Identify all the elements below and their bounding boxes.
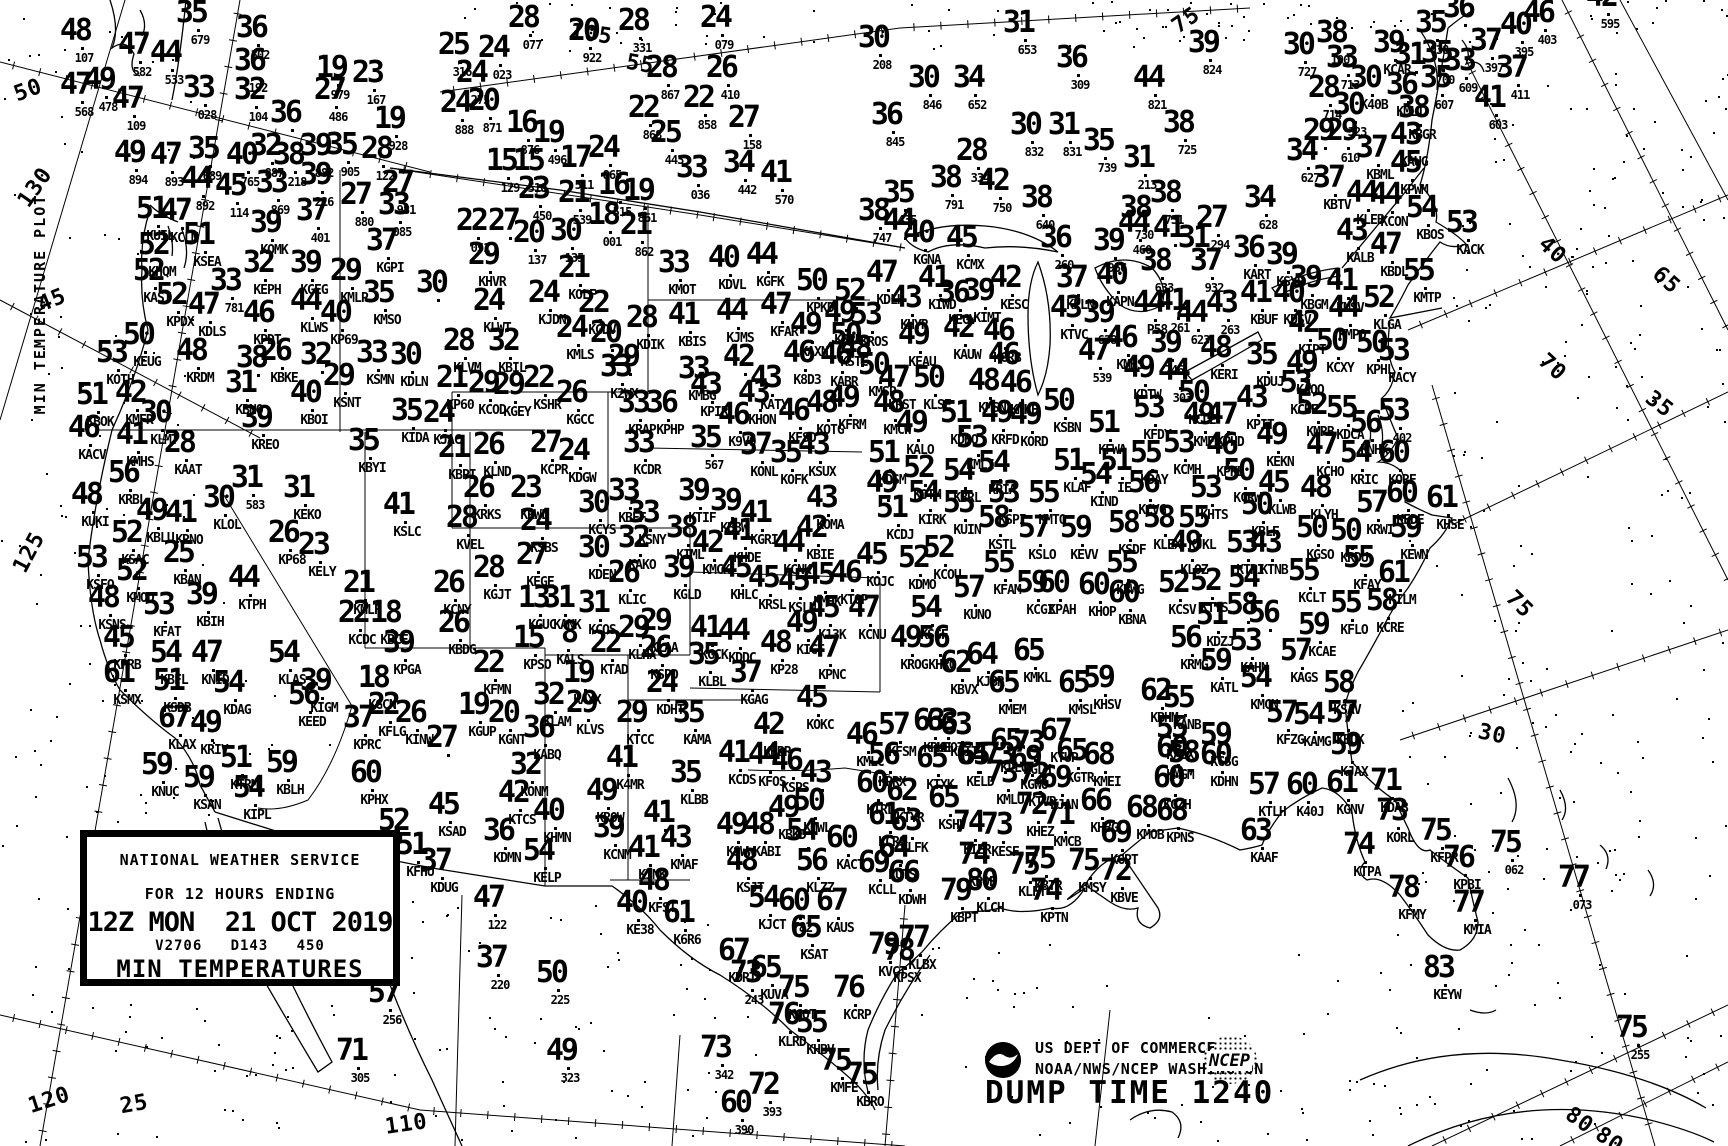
station-dot [829, 624, 832, 627]
station-dot [892, 131, 895, 134]
station-temp: 47 [816, 259, 896, 287]
station-dot [494, 914, 497, 917]
station-temp: 48 [1250, 474, 1330, 502]
station-dot [764, 841, 767, 844]
station-dot [1174, 794, 1177, 797]
station-dot [1307, 379, 1310, 382]
station-temp: 54 [473, 837, 553, 865]
station-id: 208 [837, 59, 927, 72]
station-dot [1261, 847, 1264, 850]
station-temp: 29 [273, 362, 353, 390]
station-temp: 47 [1028, 337, 1108, 365]
station-dot [961, 907, 964, 910]
station-dot [1464, 874, 1467, 877]
station-dot [454, 599, 457, 602]
station-dot [207, 611, 210, 614]
station-dot [459, 639, 462, 642]
station-temp: 22 [423, 649, 503, 677]
station-id: KDUG [399, 882, 489, 895]
station-dot [489, 271, 492, 274]
station-temp: 49 [496, 1037, 576, 1065]
station-id: 403 [1502, 34, 1592, 47]
station-temp: 41 [578, 834, 658, 862]
station-dot [344, 392, 347, 395]
station-temp: 31 [1073, 144, 1153, 172]
station-temp: 30 [366, 269, 446, 297]
station-dot [384, 309, 387, 312]
station-temp: 22 [578, 94, 658, 122]
station-dot [403, 199, 406, 202]
station-dot [1002, 429, 1005, 432]
station-dot [694, 729, 697, 732]
station-dot [264, 329, 267, 332]
station-temp: 71 [286, 1037, 366, 1065]
station-dot [171, 69, 174, 72]
station-temp: 60 [1328, 439, 1408, 467]
station-temp: 49 [140, 709, 220, 737]
station-dot [897, 524, 900, 527]
station-dot [1081, 544, 1084, 547]
station-temp: 27 [376, 724, 456, 752]
station-temp: 54 [928, 449, 1008, 477]
station-dot [681, 854, 684, 857]
station-dot [377, 369, 380, 372]
station-dot [637, 729, 640, 732]
station-dot [721, 34, 724, 37]
station-temp: 32 [438, 327, 518, 355]
station-dot [1269, 801, 1272, 804]
station-temp: 35 [623, 699, 703, 727]
station-dot [737, 841, 740, 844]
station-temp: 65 [963, 637, 1043, 665]
station-dot [867, 1091, 870, 1094]
station-temp: 24 [596, 669, 676, 697]
station-dot [494, 317, 497, 320]
station-dot [1191, 559, 1194, 562]
station-dot [639, 419, 642, 422]
station-temp: 78 [833, 937, 913, 965]
station-id: 435 [862, 214, 952, 227]
station-dot [1544, 29, 1547, 32]
station-id: KATY [729, 399, 819, 412]
station-temp: 44 [696, 241, 776, 269]
station-temp: 39 [191, 404, 271, 432]
station-dot [817, 714, 820, 717]
station-dot [1351, 761, 1354, 764]
side-axis-label: MIN TEMPERATURE PLOT [31, 189, 49, 419]
station-id: KHSV [1062, 699, 1152, 712]
station-temp: 37 [680, 659, 760, 687]
station-dot [1154, 94, 1157, 97]
station-dot [133, 115, 136, 118]
station-id: KMIA [1432, 924, 1522, 937]
ncep-logo-text: NCEP [1207, 1051, 1252, 1071]
station-dot [1099, 367, 1102, 370]
station-id: KPSX [862, 972, 952, 985]
station-temp: 75 [1370, 817, 1450, 845]
station-temp: 57 [1230, 637, 1310, 665]
station-temp: 61 [1376, 484, 1456, 512]
station-dot [1287, 271, 1290, 274]
station-id: KPTN [1009, 912, 1099, 925]
station-dot [395, 135, 398, 138]
station-dot [579, 467, 582, 470]
station-dot [771, 394, 774, 397]
station-temp: 27 [332, 169, 412, 197]
station-temp: 26 [388, 609, 468, 637]
station-dot [437, 299, 440, 302]
station-dot [1144, 174, 1147, 177]
station-temp: 25 [600, 119, 680, 147]
station-dot [234, 699, 237, 702]
station-dot [684, 929, 687, 932]
station-temp: 66 [838, 859, 918, 887]
station-temp: 45 [378, 791, 458, 819]
station-temp: 26 [506, 379, 586, 407]
station-id: K6R6 [642, 934, 732, 947]
station-temp: 54 [163, 669, 243, 697]
station-dot [1387, 617, 1390, 620]
station-dot [974, 604, 977, 607]
station-dot [319, 561, 322, 564]
station-dot [412, 427, 415, 430]
station-dot [254, 804, 257, 807]
station-dot [904, 967, 907, 970]
station-dot [1209, 59, 1212, 62]
station-dot [1051, 907, 1054, 910]
station-dot [691, 789, 694, 792]
station-temp: 33 [160, 267, 240, 295]
station-dot [1129, 609, 1132, 612]
station-dot [509, 357, 512, 360]
station-dot [749, 134, 752, 137]
station-dot [185, 459, 188, 462]
station-dot [389, 1009, 392, 1012]
cuba [1360, 1053, 1714, 1146]
station-dot [1424, 287, 1427, 290]
station-temp: 51 [1038, 409, 1118, 437]
station-dot [1024, 39, 1027, 42]
station-dot [924, 249, 927, 252]
station-dot [341, 329, 344, 332]
station-id: KACK [1425, 244, 1515, 257]
station-dot [811, 944, 814, 947]
station-temp: 59 [216, 749, 296, 777]
station-id: 595 [1565, 18, 1655, 31]
legend-valid-time: 12Z MON 21 OCT 2019 [87, 907, 393, 938]
station-dot [1384, 314, 1387, 317]
station-temp: 55 [1238, 557, 1318, 585]
station-dot [1049, 509, 1052, 512]
station-temp: 73 [963, 729, 1043, 757]
yucatan [1130, 1110, 1181, 1138]
station-dot [1045, 875, 1048, 878]
station-id: KBRO [825, 1096, 915, 1109]
station-temp: 47 [1320, 231, 1400, 259]
station-temp: 53 [1396, 209, 1476, 237]
noaa-logo-icon [985, 1042, 1021, 1078]
station-id: KEYW [1402, 989, 1492, 1002]
station-temp: 21 [293, 569, 373, 597]
station-dot [837, 917, 840, 920]
station-id: KGZH [1132, 799, 1222, 812]
station-dot [117, 369, 120, 372]
station-dot [1184, 139, 1187, 142]
station-temp: 24 [650, 4, 730, 32]
station-temp: 36 [473, 714, 553, 742]
graticule-label: 55 [624, 50, 656, 80]
station-temp: 36 [220, 99, 300, 127]
legend-agency: NATIONAL WEATHER SERVICE [87, 851, 393, 869]
station-temp: 65 [740, 914, 820, 942]
station-dot [204, 104, 207, 107]
station-dot [1319, 641, 1322, 644]
station-temp: 83 [1373, 954, 1453, 982]
station-id: KSYR [1245, 276, 1335, 289]
station-temp: 75 [796, 1061, 876, 1089]
station-dot [1261, 694, 1264, 697]
station-dot [224, 514, 227, 517]
station-temp: 43 [700, 364, 780, 392]
station-id: 305 [315, 1072, 405, 1085]
station-temp: 52 [848, 544, 928, 572]
station-dot [909, 889, 912, 892]
station-temp: 75 [1566, 1014, 1646, 1042]
station-temp: 24 [470, 507, 550, 535]
station-id: 323 [525, 1072, 615, 1085]
station-temp: 44 [1083, 64, 1163, 92]
station-temp: 28 [114, 429, 194, 457]
station-dot [589, 47, 592, 50]
station-dot [262, 434, 265, 437]
station-dot [804, 369, 807, 372]
station-dot [304, 504, 307, 507]
station-id: KCRS [847, 836, 937, 849]
station-temp: 25 [113, 539, 193, 567]
station-temp: 60 [300, 759, 380, 787]
station-id: KTPH [207, 599, 297, 612]
station-dot [373, 89, 376, 92]
station-temp: 41 [1424, 84, 1504, 112]
station-dot [271, 239, 274, 242]
station-dot [441, 877, 444, 880]
station-temp: 53 [906, 424, 986, 452]
station-dot [1121, 849, 1124, 852]
station-temp: 38 [1113, 109, 1193, 137]
station-temp: 59 [1280, 731, 1360, 759]
station-dot [1321, 504, 1324, 507]
station-temp: 39 [200, 209, 280, 237]
station-temp: 58 [1273, 669, 1353, 697]
station-temp: 53 [1328, 337, 1408, 365]
station-id: 073 [1537, 899, 1627, 912]
station-dot [544, 744, 547, 747]
station-temp: 61 [613, 899, 693, 927]
station-dot [1399, 367, 1402, 370]
station-id: 256 [347, 1014, 437, 1027]
station-temp: 50 [486, 959, 566, 987]
station-dot [1161, 277, 1164, 280]
station-dot [769, 1101, 772, 1104]
station-dot [697, 184, 700, 187]
station-temp: 63 [1190, 817, 1270, 845]
station-id: KMTP [1382, 292, 1472, 305]
station-temp: 39 [136, 581, 216, 609]
station-id: KMSO [342, 314, 432, 327]
station-temp: 24 [373, 399, 453, 427]
station-temp: 30 [808, 24, 888, 52]
station-id: 334 [935, 172, 1025, 185]
station-temp: 23 [248, 531, 328, 559]
station-dot [1411, 544, 1414, 547]
station-temp: 41 [710, 159, 790, 187]
station-dot [629, 589, 632, 592]
station-dot [1347, 147, 1350, 150]
station-temp: 32 [568, 524, 648, 552]
station-temp: 72 [1050, 857, 1130, 885]
legend-period: FOR 12 HOURS ENDING [87, 885, 393, 903]
station-dot [1217, 234, 1220, 237]
station-id: 824 [1167, 64, 1257, 77]
station-temp: 54 [218, 639, 298, 667]
station-dot [1121, 887, 1124, 890]
station-temp: 36 [186, 14, 266, 42]
legend-version: V2706 D143 450 [87, 938, 393, 954]
station-dot [531, 781, 534, 784]
graticule-label: 25 [118, 1090, 150, 1120]
station-temp: 21 [570, 211, 650, 239]
station-dot [399, 221, 402, 224]
station-temp: 77 [1508, 864, 1588, 892]
station-id: 725 [1142, 144, 1232, 157]
station-temp: 38 [1100, 179, 1180, 207]
station-dot [369, 457, 372, 460]
station-id: KREO [220, 439, 310, 452]
station-dot [887, 289, 890, 292]
station-dot [537, 571, 540, 574]
station-temp: 57 [1216, 699, 1296, 727]
station-temp: 35 [620, 759, 700, 787]
station-dot [1447, 514, 1450, 517]
station-dot [1607, 13, 1610, 16]
station-temp: 40 [1046, 261, 1126, 289]
station-dot [1364, 861, 1367, 864]
station-id: KDWH [867, 894, 957, 907]
station-temp: 54 [860, 594, 940, 622]
station-dot [741, 584, 744, 587]
station-dot [727, 84, 730, 87]
station-dot [689, 331, 692, 334]
station-dot [974, 94, 977, 97]
station-id: 225 [515, 994, 605, 1007]
station-temp: 36 [1006, 44, 1086, 72]
station-dot [599, 519, 602, 522]
station-dot [641, 241, 644, 244]
station-temp: 71 [1320, 767, 1400, 795]
station-dot [1511, 859, 1514, 862]
station-temp: 43 [748, 431, 828, 459]
station-dot [817, 877, 820, 880]
station-id: 845 [850, 136, 940, 149]
station-dot [157, 527, 160, 530]
station-temp: 45 [670, 554, 750, 582]
station-temp: 42 [1536, 0, 1616, 11]
station-temp: 31 [233, 474, 313, 502]
station-dot [489, 399, 492, 402]
station-temp: 34 [1236, 137, 1316, 165]
station-dot [577, 409, 580, 412]
station-dot [879, 227, 882, 230]
station-dot [1042, 214, 1045, 217]
station-temp: 60 [806, 769, 886, 797]
station-id: KAOO [1265, 384, 1355, 397]
station-id: KBPT [919, 912, 1009, 925]
station-id: KDLH [845, 294, 935, 307]
station-id: KIPL [212, 809, 302, 822]
station-dot [741, 1119, 744, 1122]
station-temp: 54 [1190, 664, 1270, 692]
station-dot [817, 1039, 820, 1042]
station-dot [494, 461, 497, 464]
station-dot [854, 1004, 857, 1007]
station-id: KACY [1357, 372, 1447, 385]
station-id: 747 [837, 232, 927, 245]
station-dot [1002, 841, 1005, 844]
station-dot [1444, 984, 1447, 987]
station-dot [1104, 694, 1107, 697]
station-dot [1009, 699, 1012, 702]
station-dot [1467, 239, 1470, 242]
station-temp: 73 [650, 1034, 730, 1062]
station-temp: 31 [953, 9, 1033, 37]
station-temp: 77 [1403, 889, 1483, 917]
station-dot [879, 54, 882, 57]
station-dot [404, 659, 407, 662]
station-temp: 38 [971, 184, 1051, 212]
station-temp: 58 [928, 504, 1008, 532]
station-temp: 37 [316, 227, 396, 255]
station-dot [999, 534, 1002, 537]
station-id: KCRE [1345, 622, 1435, 635]
station-id: KCBE [1259, 404, 1349, 417]
station-dot [929, 94, 932, 97]
station-dot [877, 799, 880, 802]
station-id: KLYH [1279, 509, 1369, 522]
station-dot [1637, 1044, 1640, 1047]
station-dot [679, 279, 682, 282]
station-temp: 26 [383, 569, 463, 597]
station-temp: 27 [678, 104, 758, 132]
station-id: KLBB [649, 794, 739, 807]
station-dot [567, 1067, 570, 1070]
station-dot [287, 779, 290, 782]
station-id: KBIH [165, 616, 255, 629]
station-dot [829, 664, 832, 667]
station-dot [1399, 427, 1402, 430]
station-id: 109 [91, 120, 181, 133]
station-temp: 39 [1216, 241, 1296, 269]
station-dot [264, 279, 267, 282]
station-dot [1177, 827, 1180, 830]
station-id: KBYI [327, 462, 417, 475]
station-temp: 33 [133, 74, 213, 102]
station-dot [357, 1067, 360, 1070]
station-dot [1265, 214, 1268, 217]
station-temp: 60 [1150, 741, 1230, 769]
station-dot [1009, 509, 1012, 512]
station-dot [1517, 84, 1520, 87]
station-dot [919, 954, 922, 957]
